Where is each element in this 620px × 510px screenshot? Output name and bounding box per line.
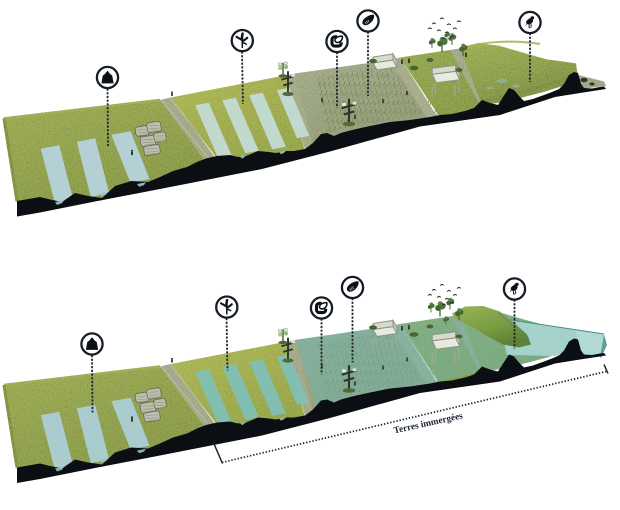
svg-text:Terres immergées: Terres immergées: [393, 411, 464, 436]
